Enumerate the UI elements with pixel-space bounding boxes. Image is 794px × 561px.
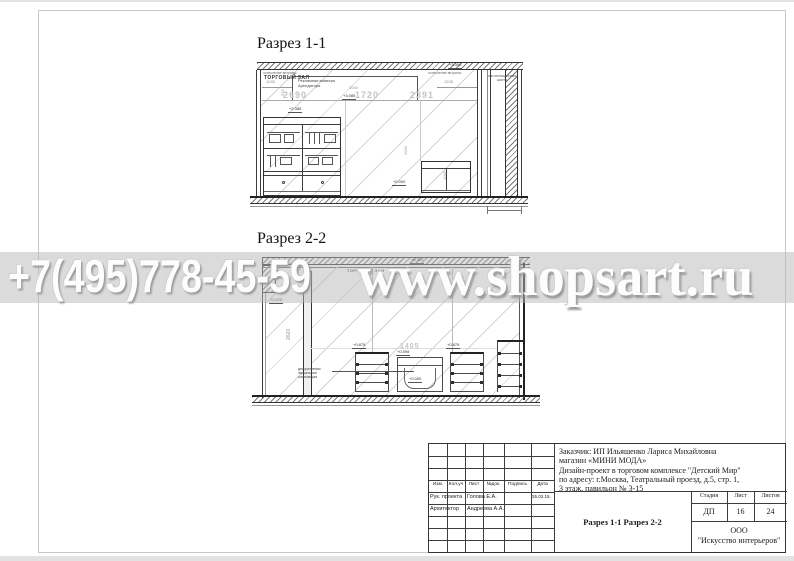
section1-joint-line1 <box>345 101 346 196</box>
section2-title: Разрез 2-2 <box>257 230 326 248</box>
cabinet-garment2 <box>284 134 294 143</box>
tb-row-line8 <box>429 540 554 541</box>
tb-stage-label: Стадия <box>691 493 727 499</box>
bench-scoop <box>404 368 436 389</box>
cabinet-hanger-tick4 <box>270 156 271 167</box>
section1-floor-slab <box>250 196 528 204</box>
section1-ceiling-slab <box>257 62 523 70</box>
section1-dim-line-left <box>262 87 292 88</box>
watermark-url: www.shopsart.ru <box>358 249 753 305</box>
wall-unit-shelf4 <box>500 386 520 387</box>
section1-left-wall-line-outer <box>256 70 257 196</box>
section2-fitting-bench <box>397 357 443 392</box>
section1-dim-1245-left: 1245 <box>266 80 275 85</box>
tb-col-data: Дата <box>531 482 554 488</box>
table-a-shelf3 <box>358 382 386 383</box>
cabinet-plinth-line <box>264 191 340 192</box>
tb-stage-header-line <box>691 503 787 504</box>
cabinet-rod1-left <box>267 132 300 133</box>
table-b-shelf1 <box>453 364 481 365</box>
tb-col-podpis: Подпись <box>504 482 531 488</box>
section2-dim-1405: 1405 <box>400 343 420 350</box>
low-cabinet-plinth-line <box>422 190 470 191</box>
section1-shaft-label-line2: шахта <box>484 78 520 82</box>
section2-elev-table-b: +0.875 <box>446 343 460 349</box>
tb-company-line1: ООО <box>691 526 787 536</box>
tb-row-line1 <box>429 456 554 457</box>
cabinet-drawer-knob1 <box>282 181 285 184</box>
section1-dim-1720: 1720 <box>355 90 379 100</box>
tb-row-line5 <box>429 504 554 505</box>
section2-note-line3: композиция <box>298 375 332 379</box>
table-a-shelf2 <box>358 373 386 374</box>
cabinet-rod2-left <box>267 155 300 156</box>
section2-elev-table-a: +0.875 <box>352 343 366 349</box>
tb-sheets-label: Листов <box>754 493 787 499</box>
section1-title: Разрез 1-1 <box>257 35 326 53</box>
tb-client-line4: по адресу: г.Москва, Театральный проезд,… <box>559 475 785 484</box>
table-b-shelf2 <box>453 373 481 374</box>
tb-row-line6 <box>429 516 554 517</box>
section1-ad-sign-label-line2: Арендатора <box>298 84 320 89</box>
wall-unit-shelf1 <box>500 353 520 354</box>
tb-col-list: Лист <box>465 482 483 488</box>
section1-dim-v1: 515 <box>281 89 286 96</box>
tb-col-line2 <box>465 444 466 552</box>
section1-dim-line-right <box>437 87 477 88</box>
section2-floor-slab <box>252 395 540 403</box>
section2-display-table-a <box>355 352 389 392</box>
cabinet-garment6 <box>322 157 333 165</box>
tb-client-line1: Заказчик: ИП Ильяшенко Лариса Михайловна <box>559 447 785 456</box>
section2-floor-line2 <box>252 405 540 406</box>
section1-shaft-dim-tick-left <box>487 206 488 214</box>
section1-glazing-right-label: остекление витрины <box>428 71 461 75</box>
wall-unit-shelf2 <box>500 364 520 365</box>
low-cabinet-divider <box>446 168 447 190</box>
tb-sheet-value: 16 <box>727 507 754 516</box>
section1-elev-floor: +0.000 <box>392 180 406 186</box>
section1-shaft-wall-line-right <box>490 70 491 198</box>
section1-storefront-line-inner <box>477 70 478 196</box>
scan-edge-bottom <box>0 556 794 561</box>
section1-shaft-wall-line-left <box>487 70 488 198</box>
cabinet-garment1 <box>269 134 281 143</box>
cabinet-drawer-knob2 <box>321 181 324 184</box>
tb-company: ООО "Искусство интерьеров" <box>691 526 787 546</box>
section1-dim-v2: 2000 <box>404 146 409 155</box>
tb-left-table-right-border <box>554 444 555 552</box>
tb-row1-role: Рук. проекта <box>430 494 462 500</box>
tb-client-line3: Дизайн-проект в торговом комплексе "Детс… <box>559 466 785 475</box>
tb-row1-name: Голова Е.А. <box>467 494 497 500</box>
cabinet-rod2-right <box>305 155 338 156</box>
section2-elev-bench: +0.595 <box>396 350 410 356</box>
section2-note: декоративная зеркальная композиция <box>298 367 332 379</box>
watermark-phone: +7(495)778-45-59 <box>8 253 311 299</box>
tb-row2-name: Андреева А.А. <box>467 506 504 512</box>
section1-dim-1245-right: 1245 <box>444 80 453 85</box>
cabinet-center-divider <box>302 124 303 191</box>
section1-low-cabinet <box>421 161 471 193</box>
section1-elev-sign: +3.085 <box>342 94 356 100</box>
scan-edge-top <box>0 0 794 2</box>
section1-elev-top: +3.300 <box>448 63 462 69</box>
cabinet-hanger-tick5 <box>275 156 276 167</box>
cabinet-hanger-tick2 <box>314 133 315 144</box>
section2-wall-shelf-unit <box>497 340 523 392</box>
section1-dim-2690: 2690 <box>283 90 307 100</box>
tb-row-line3 <box>429 480 554 481</box>
section1-left-wall-line-inner <box>260 70 261 196</box>
drawing-sheet: { "watermark": { "phone": "+7(495)778-45… <box>0 0 794 561</box>
tb-row-line2 <box>429 468 554 469</box>
cabinet-hanger-tick3 <box>319 133 320 144</box>
tb-client-info: Заказчик: ИП Ильяшенко Лариса Михайловна… <box>559 447 785 493</box>
cabinet-garment3 <box>324 134 336 143</box>
section1-shaft-dim-tick-right <box>521 206 522 214</box>
table-b-shelf3 <box>453 382 481 383</box>
cabinet-garment5 <box>308 157 319 165</box>
cabinet-hanger-tick1 <box>309 133 310 144</box>
section1-shaft-label: инсталляционная шахта <box>484 74 520 82</box>
tb-row-line4 <box>429 492 554 493</box>
section1-elev-left: +2.385 <box>288 107 302 113</box>
tb-client-line2: магазин «МИНИ МОДА» <box>559 456 785 465</box>
wall-unit-shelf3 <box>500 375 520 376</box>
tb-doc-title: Разрез 1-1 Разрез 2-2 <box>554 517 691 527</box>
tb-stage-value: ДП <box>691 507 727 516</box>
cabinet-garment4 <box>280 157 292 165</box>
tb-sheets-value: 24 <box>754 507 787 516</box>
section1-shaft-dim-line <box>487 210 522 211</box>
section2-display-table-b <box>450 352 484 392</box>
section1-dim-chain-line <box>262 100 477 101</box>
tb-stage-bottom-line <box>691 521 787 522</box>
tb-col-ndok: №док. <box>483 482 504 488</box>
section1-dim-2391: 2391 <box>410 90 434 100</box>
section2-dim-v1: 2620 <box>287 329 293 340</box>
tb-sheet-label: Лист <box>727 493 754 499</box>
tb-col-izm: Изм. <box>429 482 447 488</box>
tb-row2-role: Архитектор <box>430 506 459 512</box>
section1-shaft-outer-line <box>521 70 522 198</box>
tb-client-bottom-line <box>554 491 787 492</box>
tb-row-line7 <box>429 528 554 529</box>
bench-top-line <box>398 365 442 366</box>
tb-company-line2: "Искусство интерьеров" <box>691 536 787 546</box>
section1-wardrobe-cabinet <box>263 117 341 196</box>
tb-col-line4 <box>504 444 505 552</box>
section1-joint-line2 <box>420 101 421 161</box>
tb-row1-date: 25.02.15. <box>532 494 551 499</box>
section1-shaft-wall-hatch <box>505 70 518 198</box>
section1-storefront-line-outer <box>481 70 482 196</box>
title-block: Изм. Кол.уч Лист №док. Подпись Дата Рук.… <box>428 443 786 553</box>
tb-col-koluch: Кол.уч <box>447 482 465 488</box>
table-a-shelf1 <box>358 364 386 365</box>
